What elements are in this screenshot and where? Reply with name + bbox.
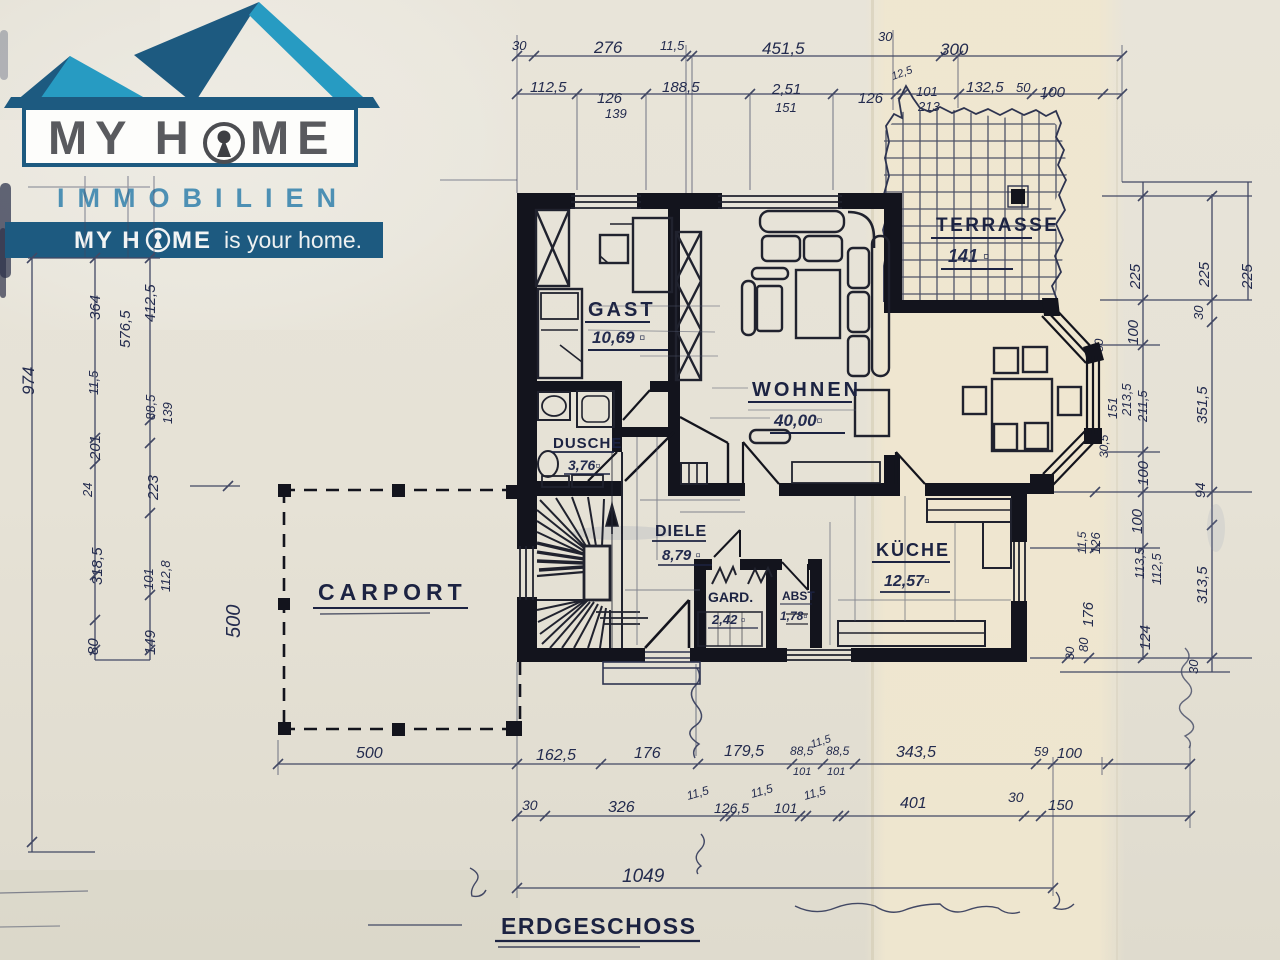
svg-text:225: 225	[1196, 261, 1213, 288]
svg-text:126: 126	[1088, 532, 1103, 554]
svg-text:11,5: 11,5	[660, 38, 685, 53]
svg-text:141 ▫: 141 ▫	[948, 246, 989, 266]
svg-text:3,76▫: 3,76▫	[568, 457, 600, 473]
svg-text:101: 101	[916, 84, 938, 99]
svg-text:201: 201	[87, 435, 104, 461]
svg-text:113,5: 113,5	[1132, 547, 1147, 579]
svg-text:30: 30	[512, 38, 527, 53]
svg-text:500: 500	[356, 745, 383, 762]
svg-text:188,5: 188,5	[662, 79, 700, 96]
svg-text:225: 225	[1127, 263, 1144, 290]
svg-text:1049: 1049	[622, 866, 665, 887]
svg-text:179,5: 179,5	[724, 743, 764, 760]
svg-text:11,5: 11,5	[86, 370, 101, 395]
svg-text:300: 300	[940, 40, 969, 59]
svg-text:401: 401	[900, 795, 927, 812]
svg-text:30: 30	[522, 797, 538, 813]
svg-text:112,5: 112,5	[1149, 553, 1164, 585]
svg-text:is your home.: is your home.	[224, 227, 362, 253]
svg-text:TERRASSE: TERRASSE	[936, 215, 1059, 236]
svg-text:364: 364	[87, 295, 104, 320]
svg-text:326: 326	[608, 799, 635, 816]
svg-text:8,79 ▫: 8,79 ▫	[662, 547, 701, 564]
svg-text:ABST: ABST	[782, 589, 815, 603]
svg-text:ERDGESCHOSS: ERDGESCHOSS	[501, 913, 696, 939]
svg-text:149: 149	[142, 629, 159, 655]
svg-text:ME: ME	[172, 227, 212, 254]
svg-text:162,5: 162,5	[536, 747, 576, 764]
svg-text:974: 974	[19, 367, 38, 395]
svg-text:1,78▫: 1,78▫	[780, 609, 808, 623]
svg-text:126,5: 126,5	[714, 800, 749, 816]
svg-text:DUSCHE: DUSCHE	[553, 435, 622, 452]
svg-text:94: 94	[1192, 482, 1208, 498]
svg-text:100: 100	[1057, 745, 1083, 762]
svg-text:30: 30	[1191, 305, 1206, 320]
svg-text:80: 80	[1076, 637, 1091, 652]
svg-text:CARPORT: CARPORT	[318, 579, 467, 605]
svg-text:211,5: 211,5	[1135, 390, 1150, 423]
svg-text:KÜCHE: KÜCHE	[876, 540, 950, 560]
svg-text:59: 59	[1034, 744, 1048, 759]
svg-text:GARD.: GARD.	[708, 589, 753, 605]
svg-text:GAST: GAST	[588, 299, 656, 321]
svg-text:313,5: 313,5	[1194, 566, 1211, 604]
svg-text:DIELE: DIELE	[655, 523, 707, 540]
svg-text:100: 100	[1129, 508, 1146, 534]
svg-text:50: 50	[1016, 80, 1031, 95]
svg-text:88,5: 88,5	[826, 744, 850, 758]
svg-text:213,5: 213,5	[1119, 383, 1134, 417]
svg-text:176: 176	[1080, 601, 1097, 627]
svg-text:30: 30	[878, 29, 893, 44]
svg-text:223: 223	[145, 474, 162, 501]
svg-text:2,51: 2,51	[771, 81, 801, 98]
svg-text:100: 100	[1125, 319, 1142, 345]
svg-text:151: 151	[1105, 397, 1120, 419]
svg-text:ME: ME	[250, 111, 337, 164]
svg-text:101: 101	[827, 766, 845, 778]
svg-text:139: 139	[160, 402, 175, 424]
svg-text:225: 225	[1239, 263, 1256, 290]
svg-text:30: 30	[1008, 789, 1024, 805]
svg-text:124: 124	[1137, 625, 1154, 650]
svg-text:MY H: MY H	[48, 111, 197, 164]
svg-text:276: 276	[593, 38, 623, 57]
svg-text:11,5: 11,5	[1075, 531, 1089, 554]
svg-text:101: 101	[141, 568, 156, 590]
svg-text:101: 101	[774, 800, 797, 816]
svg-text:412,5: 412,5	[142, 284, 159, 322]
svg-text:24: 24	[80, 483, 95, 498]
svg-text:151: 151	[775, 100, 797, 115]
svg-text:576,5: 576,5	[117, 310, 134, 348]
svg-text:80: 80	[85, 638, 102, 655]
svg-text:139: 139	[605, 106, 627, 121]
svg-text:112,5: 112,5	[530, 79, 567, 96]
svg-text:150: 150	[1048, 797, 1074, 814]
svg-text:40,00▫: 40,00▫	[773, 411, 823, 430]
svg-text:100: 100	[1040, 84, 1066, 101]
svg-text:343,5: 343,5	[896, 744, 936, 761]
svg-text:126: 126	[858, 90, 884, 107]
svg-text:12,57▫: 12,57▫	[884, 573, 930, 590]
svg-text:30: 30	[1063, 646, 1077, 660]
svg-text:176: 176	[634, 745, 661, 762]
svg-text:88,5: 88,5	[790, 744, 814, 758]
svg-text:318,5: 318,5	[89, 547, 106, 585]
svg-text:30: 30	[1186, 659, 1201, 674]
svg-text:2,42 ▫: 2,42 ▫	[711, 612, 746, 627]
svg-text:101: 101	[793, 766, 811, 778]
svg-text:126: 126	[597, 90, 623, 107]
svg-text:132,5: 132,5	[966, 79, 1004, 96]
svg-text:112,8: 112,8	[158, 560, 173, 592]
svg-text:351,5: 351,5	[1194, 386, 1211, 424]
svg-text:MY H: MY H	[74, 227, 142, 254]
svg-text:WOHNEN: WOHNEN	[752, 379, 861, 401]
svg-text:100: 100	[1135, 460, 1152, 486]
svg-text:500: 500	[223, 605, 245, 638]
svg-text:451,5: 451,5	[762, 39, 805, 58]
svg-text:88,5: 88,5	[143, 394, 158, 420]
